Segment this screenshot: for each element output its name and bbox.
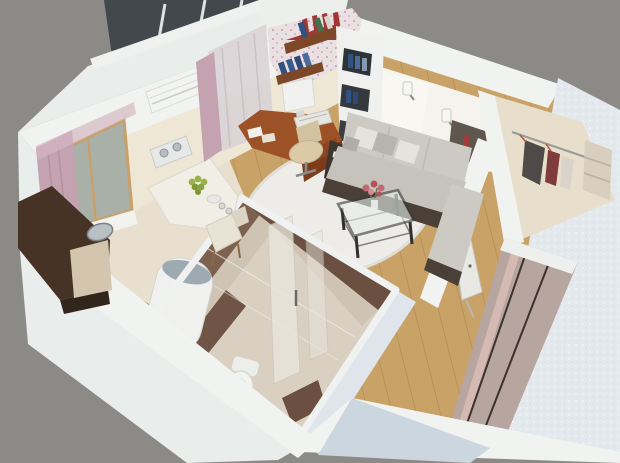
cup-2 bbox=[226, 208, 232, 214]
niche-book-2 bbox=[355, 56, 360, 69]
niche-book-4 bbox=[346, 90, 351, 103]
niche-book-3 bbox=[362, 58, 367, 71]
cup bbox=[219, 203, 225, 209]
closet-shelves bbox=[583, 140, 612, 200]
apartment-3d-render bbox=[0, 0, 620, 463]
niche-book bbox=[348, 54, 353, 68]
table-leg-4 bbox=[356, 236, 358, 258]
render-canvas bbox=[0, 0, 620, 463]
counter-beige-section bbox=[70, 240, 112, 298]
plate bbox=[207, 195, 221, 203]
monitor bbox=[282, 78, 315, 112]
niche-book-5 bbox=[353, 92, 358, 104]
